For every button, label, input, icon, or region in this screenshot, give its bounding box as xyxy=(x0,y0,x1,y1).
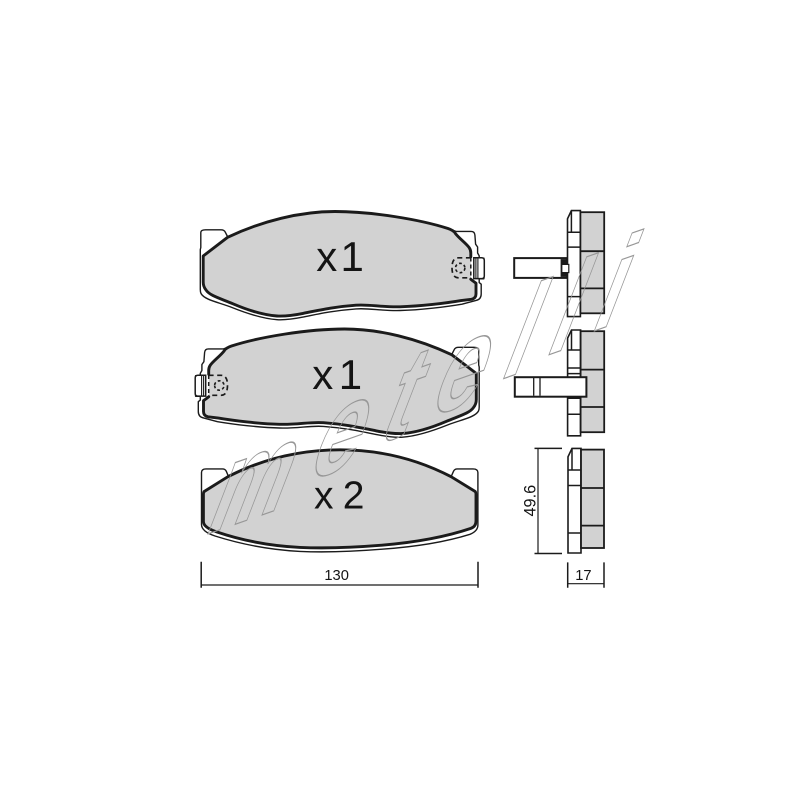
svg-text:x1: x1 xyxy=(316,233,364,280)
svg-text:130: 130 xyxy=(324,568,349,584)
svg-text:49.6: 49.6 xyxy=(521,485,539,517)
svg-text:17: 17 xyxy=(575,568,591,584)
